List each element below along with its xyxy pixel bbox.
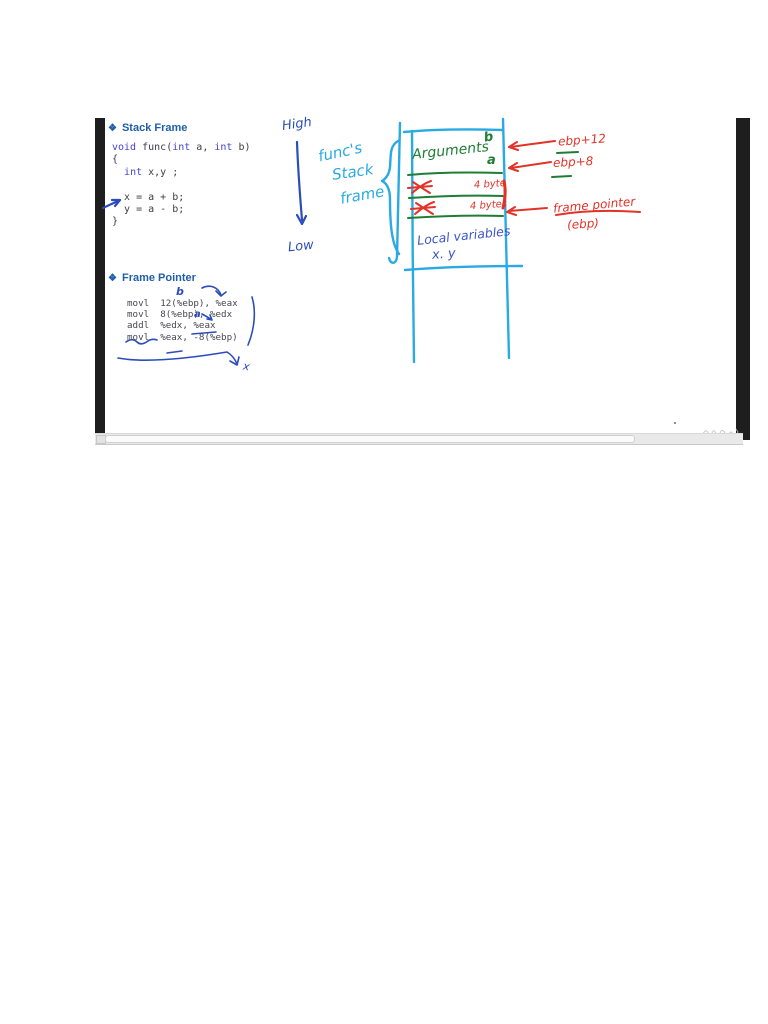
annotation-low: Low [287,239,314,255]
crossed-out-cell-2 [411,202,435,214]
stack-label-arg-b: b [483,130,494,144]
ebp12-arrow [509,141,555,150]
section-title-stack-frame: ❖Stack Frame [108,122,187,134]
section-title-text: Frame Pointer [122,272,196,284]
asm-annotation-x: x [242,361,250,373]
annotation-stack: Stack [331,162,374,183]
horizontal-scrollbar-thumb[interactable] [105,435,635,443]
letterbox-bar-left [95,118,105,433]
stack-label-arguments: Arguments [411,140,489,162]
annotation-ebp-paren: (ebp) [567,217,600,231]
stack-label-local-variables: Local variables [417,225,511,247]
annotation-funcs: func's [317,141,364,165]
high-low-arrow [297,142,306,224]
assembly-code-block: movl 12(%ebp), %eaxmovl 8(%ebp), %edxadd… [127,298,238,343]
diamond-bullet-icon: ❖ [108,273,117,284]
annotation-frame: frame [339,184,385,206]
annotation-ebp-plus-12: ebp+12 [558,132,607,147]
crossed-out-cell-1 [408,181,432,193]
stack-label-arg-a: a [487,154,496,167]
diamond-bullet-icon: ❖ [108,123,117,134]
horizontal-scrollbar-track[interactable] [95,433,743,445]
section-title-text: Stack Frame [122,122,187,134]
annotation-frame-pointer: frame pointer [553,195,636,214]
letterbox-bar-right [736,118,750,440]
frame-pointer-arrow [507,207,547,215]
page: ❖Stack Frame void func(int a, int b){ in… [0,0,768,1024]
annotation-ebp-plus-8: ebp+8 [553,155,594,169]
ebp8-underline [552,176,571,177]
stray-dot [674,422,676,424]
ebp8-arrow [509,162,551,171]
section-title-frame-pointer: ❖Frame Pointer [108,272,196,284]
annotation-high: High [281,116,312,133]
ebp12-underline [557,152,578,153]
asm-annotation-b: b [176,286,184,297]
c-code-block: void func(int a, int b){ int x,y ; x = a… [112,142,251,229]
stack-label-local-xy: x. y [432,247,457,262]
stack-label-4byte-1: 4 byte [474,179,507,191]
asm-annotation-a: a [194,310,201,320]
stack-label-4byte-2: 4 bytes [470,200,508,213]
